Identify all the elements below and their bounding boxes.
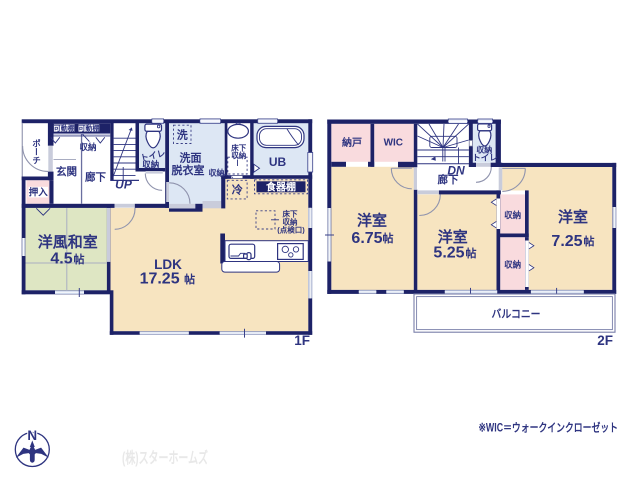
svg-text:押入: 押入 <box>29 186 49 198</box>
svg-text:廊下: 廊下 <box>85 171 106 184</box>
svg-text:収納: 収納 <box>79 142 96 152</box>
svg-text:洋室: 洋室 <box>357 211 387 229</box>
svg-text:収納: 収納 <box>504 260 521 270</box>
svg-text:収納: 収納 <box>231 150 246 160</box>
svg-text:トイレ: トイレ <box>472 153 498 163</box>
svg-text:可動棚: 可動棚 <box>78 124 99 133</box>
svg-text:可動棚: 可動棚 <box>54 124 75 133</box>
svg-text:ポーチ: ポーチ <box>32 138 42 164</box>
svg-text:UB: UB <box>269 155 287 169</box>
svg-text:5.25: 5.25 <box>433 245 464 262</box>
svg-text:帖: 帖 <box>184 272 195 286</box>
svg-text:2F: 2F <box>597 333 613 348</box>
svg-text:収納: 収納 <box>504 210 521 220</box>
svg-text:バルコニー: バルコニー <box>492 308 541 321</box>
svg-text:(株)スターホームズ: (株)スターホームズ <box>122 448 208 467</box>
svg-text:洋室: 洋室 <box>558 208 588 226</box>
svg-text:6.75: 6.75 <box>351 230 382 247</box>
svg-text:洗面: 洗面 <box>180 151 202 165</box>
svg-text:17.25: 17.25 <box>140 270 180 287</box>
svg-text:納戸: 納戸 <box>342 136 362 149</box>
svg-text:脱衣室: 脱衣室 <box>172 163 205 177</box>
svg-text:WIC: WIC <box>384 138 403 149</box>
svg-text:冷: 冷 <box>232 183 243 197</box>
svg-text:UP: UP <box>115 178 133 192</box>
svg-text:収納: 収納 <box>209 167 225 177</box>
svg-text:帖: 帖 <box>584 234 595 248</box>
svg-text:帖: 帖 <box>466 246 477 260</box>
svg-text:帖: 帖 <box>383 231 394 245</box>
svg-text:7.25: 7.25 <box>551 233 582 250</box>
svg-text:洋室: 洋室 <box>438 228 468 246</box>
svg-text:洋風和室: 洋風和室 <box>38 233 98 251</box>
svg-text:収納: 収納 <box>142 159 159 169</box>
svg-text:1F: 1F <box>294 333 310 348</box>
svg-text:玄関: 玄関 <box>56 165 77 178</box>
svg-text:帖: 帖 <box>74 252 85 266</box>
svg-text:洗: 洗 <box>177 127 188 141</box>
svg-text:食器棚: 食器棚 <box>265 180 296 193</box>
svg-text:廊下: 廊下 <box>438 173 459 186</box>
svg-text:(点検口): (点検口) <box>277 224 305 234</box>
svg-text:※WIC＝ウォークインクローゼット: ※WIC＝ウォークインクローゼット <box>479 421 619 435</box>
svg-text:4.5: 4.5 <box>50 251 72 268</box>
